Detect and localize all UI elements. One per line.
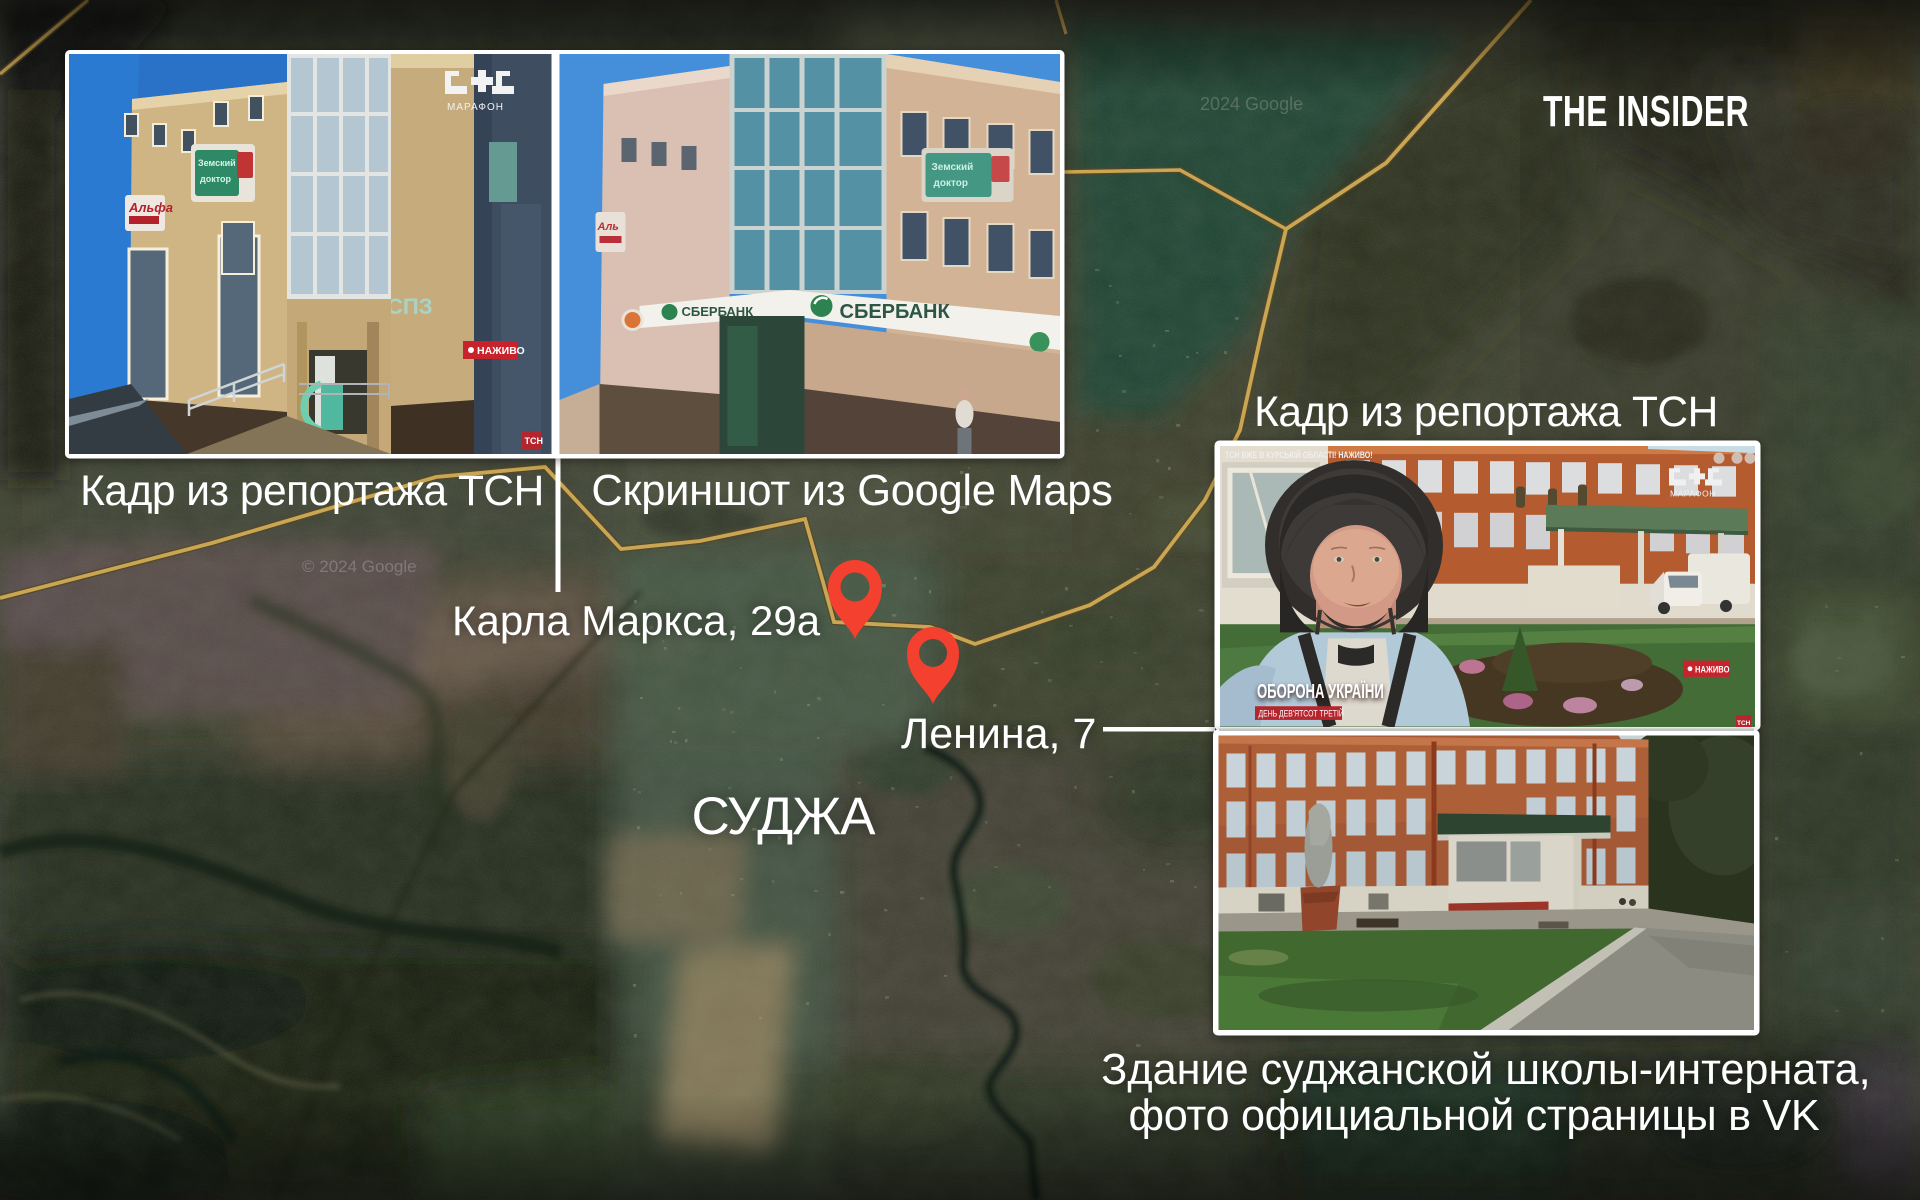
svg-text:THE INSIDER: THE INSIDER <box>1543 87 1749 136</box>
svg-text:МАРАФОН: МАРАФОН <box>1670 489 1716 499</box>
svg-text:ТСН: ТСН <box>525 436 544 446</box>
svg-text:ДЕНЬ ДЕВ'ЯТСОТ ТРЕТІЙ: ДЕНЬ ДЕВ'ЯТСОТ ТРЕТІЙ <box>1259 709 1345 719</box>
svg-text:Здание суджанской школы-интерн: Здание суджанской школы-интерната, <box>1101 1046 1870 1094</box>
svg-text:2024 Google: 2024 Google <box>1200 94 1303 114</box>
svg-text:Карла Маркса, 29а: Карла Маркса, 29а <box>452 597 821 644</box>
svg-text:НАЖИВО: НАЖИВО <box>477 345 525 357</box>
svg-text:Альфа: Альфа <box>128 200 173 215</box>
svg-text:© 2024 Google: © 2024 Google <box>302 557 417 576</box>
svg-text:ТСН ВЖЕ В КУРСЬКІЙ ОБЛАСТІ! НА: ТСН ВЖЕ В КУРСЬКІЙ ОБЛАСТІ! НАЖИВО! <box>1225 448 1373 461</box>
svg-text:фото официальной страницы в VK: фото официальной страницы в VK <box>1129 1092 1820 1140</box>
svg-text:доктор: доктор <box>200 174 232 184</box>
svg-text:Кадр из репортажа ТСН: Кадр из репортажа ТСН <box>1254 389 1718 436</box>
svg-text:МАРАФОН: МАРАФОН <box>447 102 504 113</box>
svg-text:ОБОРОНА УКРАЇНИ: ОБОРОНА УКРАЇНИ <box>1257 680 1384 703</box>
svg-text:ТСН: ТСН <box>1737 720 1751 727</box>
svg-text:СПЗ: СПЗ <box>387 294 432 319</box>
svg-text:НАЖИВО: НАЖИВО <box>1695 663 1730 674</box>
svg-text:Земский: Земский <box>198 158 236 168</box>
svg-text:СУДЖА: СУДЖА <box>692 787 877 846</box>
svg-text:Ленина, 7: Ленина, 7 <box>901 710 1096 758</box>
svg-text:Кадр из репортажа ТСН: Кадр из репортажа ТСН <box>80 468 544 515</box>
svg-text:Скриншот из Google Maps: Скриншот из Google Maps <box>591 467 1112 515</box>
